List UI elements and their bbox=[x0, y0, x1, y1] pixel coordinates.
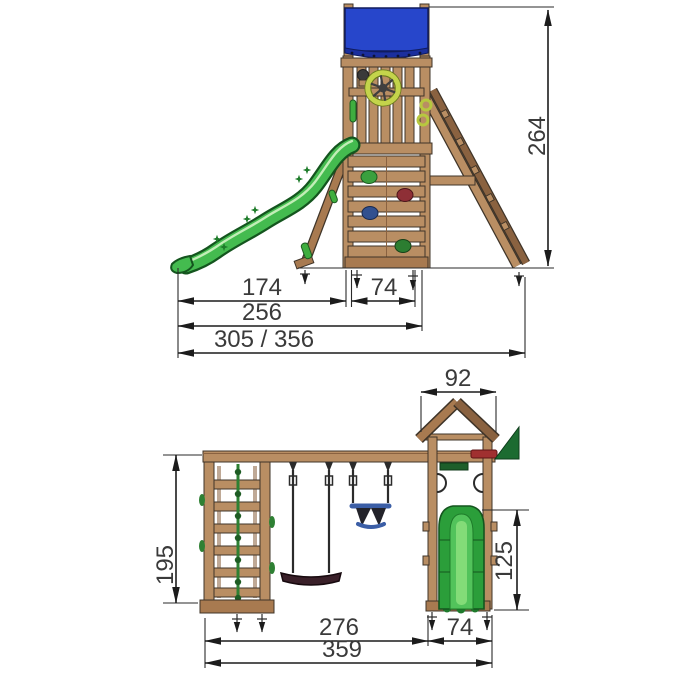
climb-hold-darkgreen bbox=[395, 240, 411, 253]
dim-label-slide-to-tower: 174 bbox=[242, 274, 282, 301]
steering-wheel-icon bbox=[365, 70, 401, 106]
entry-handle-left bbox=[437, 474, 446, 492]
dim-label-overall-width: 359 bbox=[322, 636, 362, 663]
baby-swing bbox=[349, 462, 392, 527]
wave-slide-front bbox=[439, 506, 484, 614]
swing-beam bbox=[203, 451, 495, 462]
canopy bbox=[345, 8, 428, 51]
dimension-diagram: 264 174 74 256 305 / 356 bbox=[0, 0, 700, 700]
climb-hold-green bbox=[361, 171, 377, 184]
dim-label-tower-width: 74 bbox=[447, 614, 474, 641]
climbing-wall bbox=[348, 156, 425, 257]
ground-and-anchors bbox=[298, 268, 554, 290]
dim-label-slide-to-back: 256 bbox=[242, 299, 282, 326]
gable-roof bbox=[419, 402, 496, 439]
flag bbox=[495, 427, 519, 459]
belt-swing bbox=[281, 462, 341, 585]
dim-label-overall-height: 264 bbox=[524, 116, 551, 156]
dim-label-frame-height: 195 bbox=[152, 545, 179, 585]
flag-bracket bbox=[471, 450, 497, 458]
climbing-frame bbox=[199, 460, 275, 613]
dim-label-overall-depth: 305 / 356 bbox=[214, 326, 314, 353]
entry-handle-right bbox=[474, 474, 483, 492]
side-tower bbox=[341, 4, 432, 268]
post-grip bbox=[350, 100, 356, 122]
frame-base-plank bbox=[200, 600, 274, 613]
swing-seat bbox=[281, 573, 341, 585]
dim-label-roof-width: 92 bbox=[445, 365, 472, 392]
side-view-drawing: 264 174 74 256 305 / 356 bbox=[0, 0, 700, 360]
climb-hold-blue bbox=[362, 207, 378, 220]
tower-base-plank bbox=[345, 257, 428, 268]
front-view-drawing: 92 195 125 276 74 359 bbox=[0, 360, 700, 700]
dim-label-tower-depth: 74 bbox=[371, 274, 398, 301]
slide-entry-board bbox=[440, 463, 468, 470]
climb-hold-red bbox=[397, 189, 413, 202]
dim-label-platform-height: 125 bbox=[491, 541, 518, 581]
side-access-ladder bbox=[422, 90, 526, 266]
